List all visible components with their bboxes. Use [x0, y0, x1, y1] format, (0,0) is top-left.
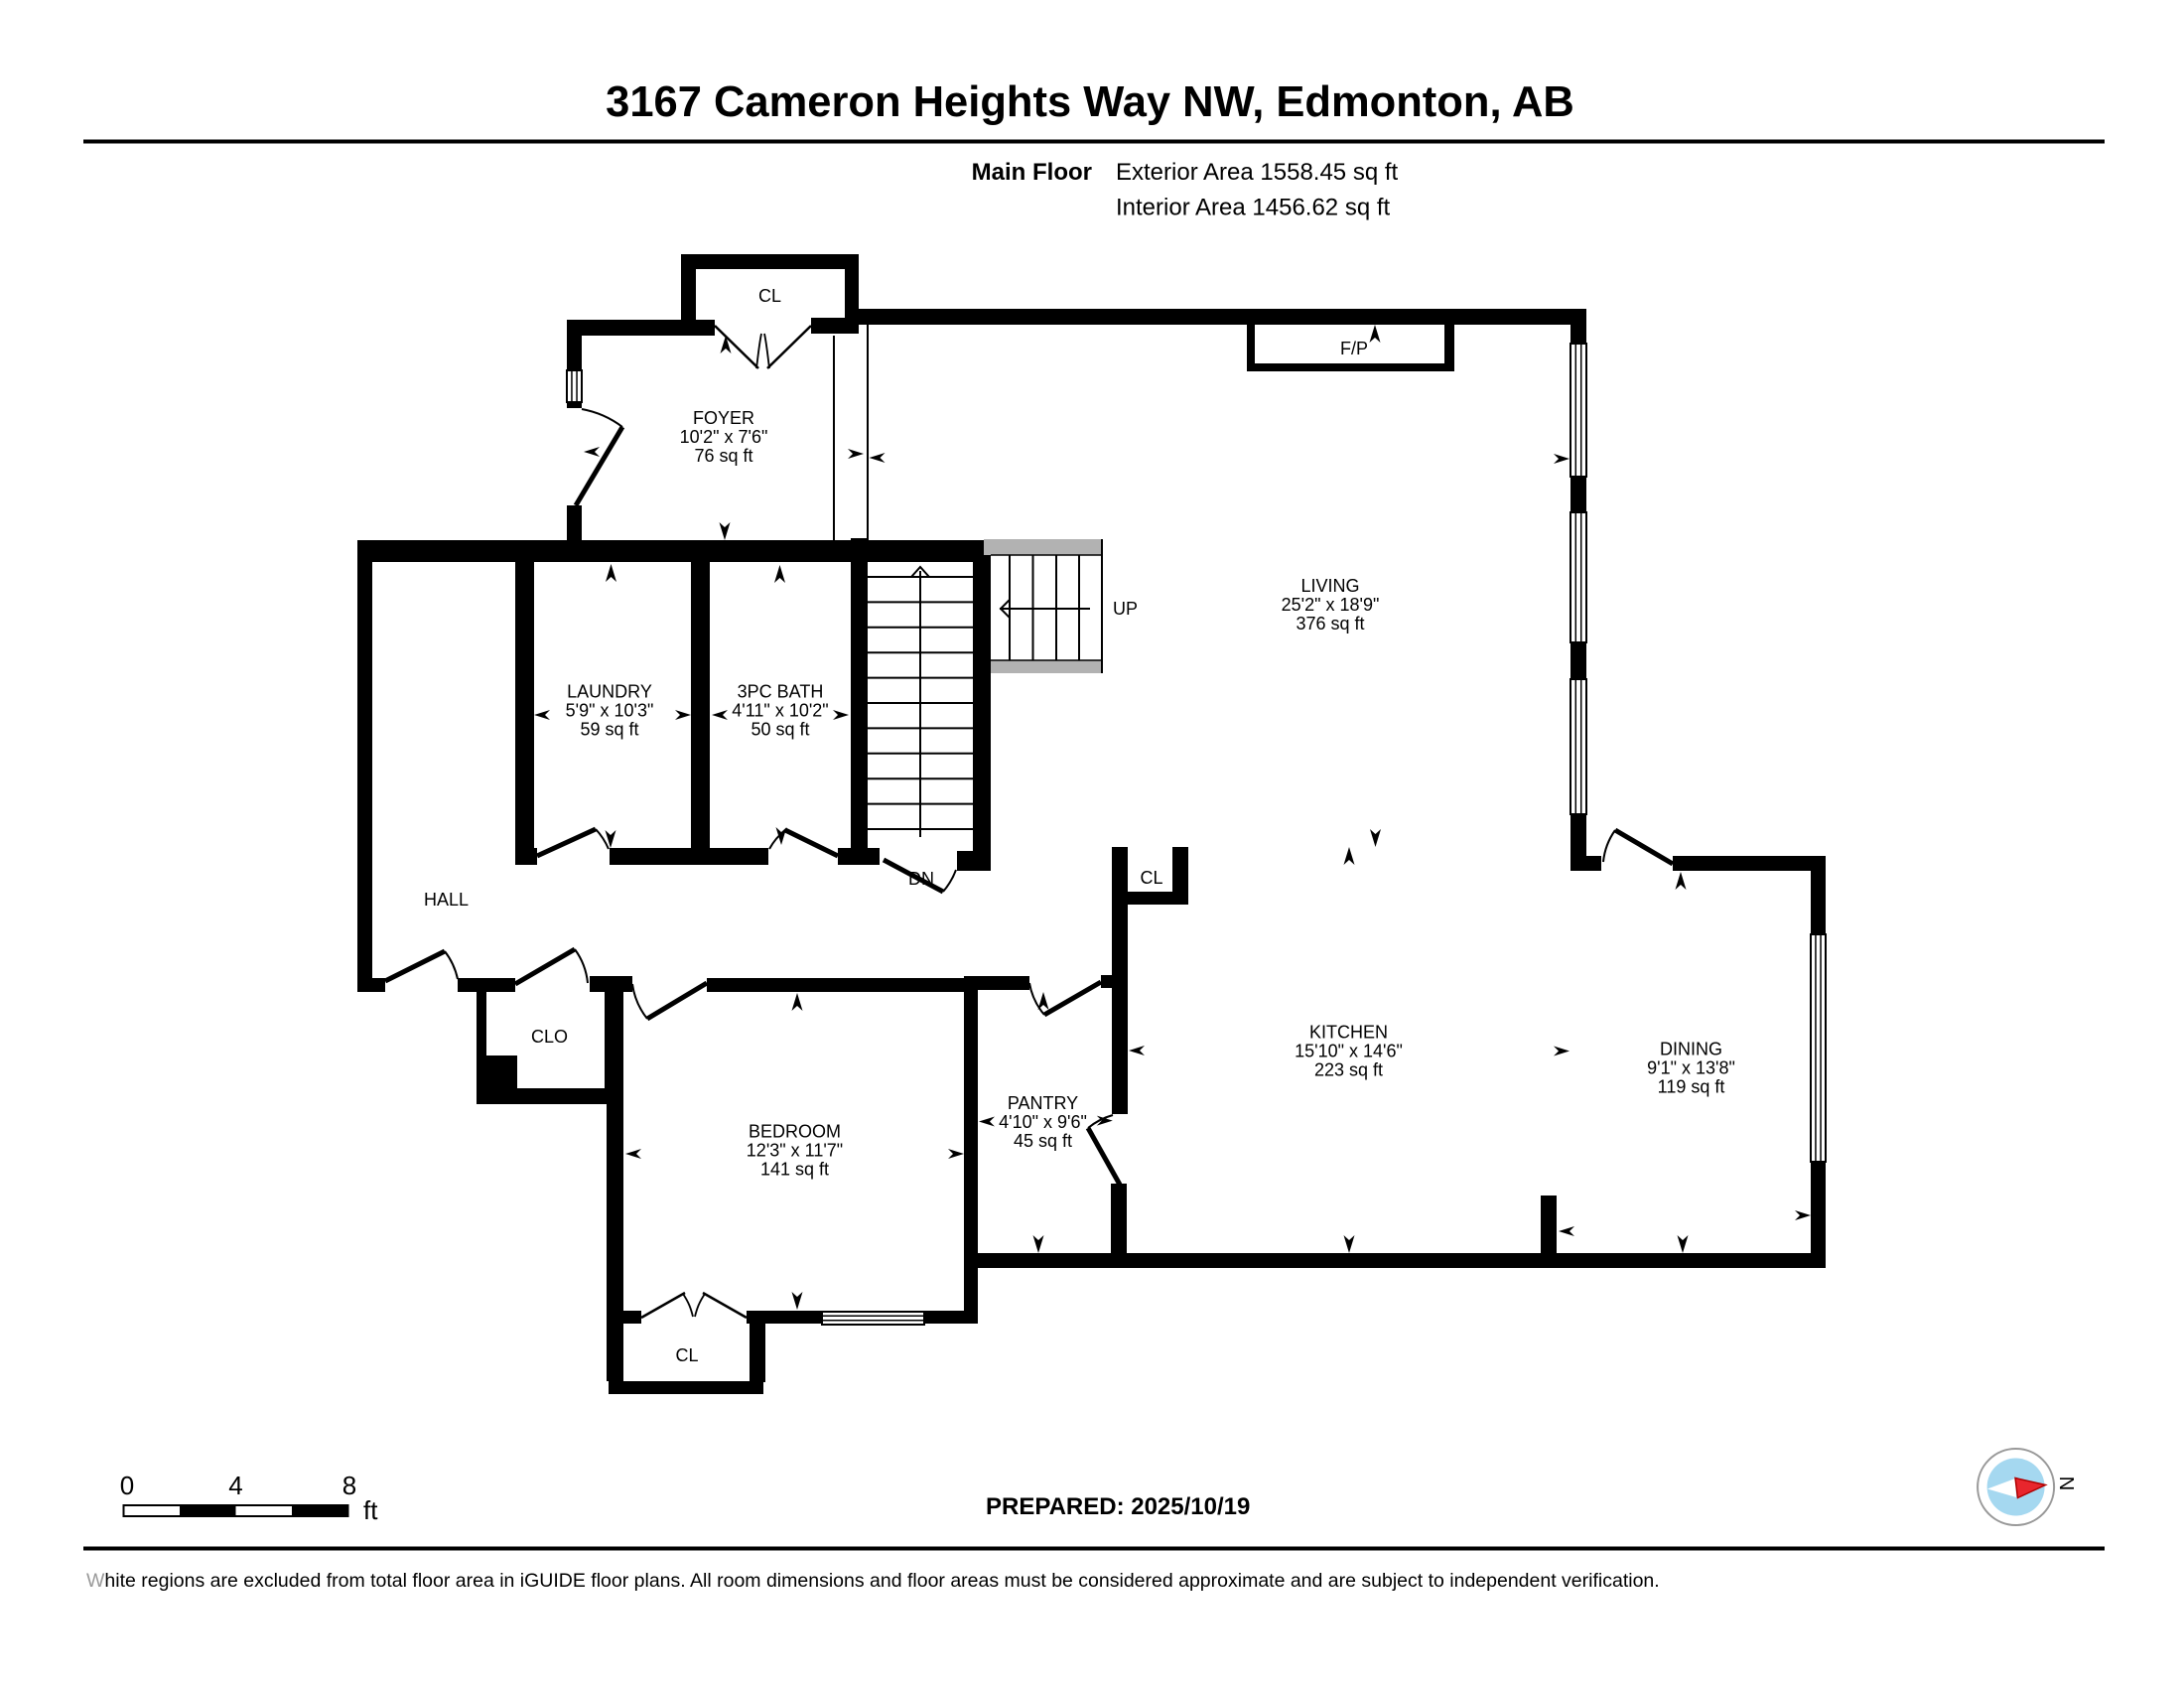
svg-text:15'10" x 14'6": 15'10" x 14'6" — [1295, 1042, 1403, 1061]
svg-text:4: 4 — [228, 1471, 242, 1500]
svg-text:223 sq ft: 223 sq ft — [1314, 1060, 1383, 1080]
svg-text:PREPARED: 2025/10/19: PREPARED: 2025/10/19 — [986, 1493, 1250, 1520]
svg-text:25'2" x 18'9": 25'2" x 18'9" — [1282, 595, 1380, 615]
svg-text:76 sq ft: 76 sq ft — [694, 446, 752, 466]
svg-text:HALL: HALL — [424, 890, 469, 910]
svg-text:5'9" x 10'3": 5'9" x 10'3" — [566, 701, 654, 721]
svg-text:10'2" x 7'6": 10'2" x 7'6" — [680, 427, 768, 447]
svg-text:Main Floor: Main Floor — [972, 159, 1092, 186]
svg-text:Exterior Area 1558.45 sq ft: Exterior Area 1558.45 sq ft — [1116, 159, 1399, 186]
svg-text:White regions are excluded fro: White regions are excluded from total fl… — [86, 1570, 1660, 1592]
svg-text:119 sq ft: 119 sq ft — [1658, 1077, 1725, 1097]
svg-text:3PC BATH: 3PC BATH — [738, 682, 824, 702]
svg-text:9'1" x 13'8": 9'1" x 13'8" — [1647, 1058, 1735, 1078]
svg-text:CL: CL — [1140, 868, 1162, 888]
svg-text:59 sq ft: 59 sq ft — [580, 720, 638, 740]
svg-text:4'11" x 10'2": 4'11" x 10'2" — [732, 701, 828, 721]
svg-text:3167 Cameron Heights Way NW, E: 3167 Cameron Heights Way NW, Edmonton, A… — [606, 78, 1574, 126]
svg-text:45 sq ft: 45 sq ft — [1014, 1131, 1072, 1151]
svg-text:CLO: CLO — [531, 1027, 568, 1047]
svg-text:Interior Area 1456.62 sq ft: Interior Area 1456.62 sq ft — [1116, 195, 1391, 221]
svg-text:376 sq ft: 376 sq ft — [1296, 614, 1364, 633]
svg-text:0: 0 — [120, 1471, 134, 1500]
svg-text:DN: DN — [908, 869, 934, 889]
svg-text:141 sq ft: 141 sq ft — [760, 1160, 829, 1180]
svg-text:FOYER: FOYER — [693, 408, 754, 428]
svg-text:ft: ft — [363, 1495, 378, 1525]
svg-text:UP: UP — [1113, 599, 1138, 619]
svg-text:50 sq ft: 50 sq ft — [751, 720, 809, 740]
svg-text:LAUNDRY: LAUNDRY — [567, 682, 652, 702]
svg-text:LIVING: LIVING — [1300, 576, 1359, 596]
svg-text:N: N — [2055, 1477, 2077, 1490]
svg-text:F/P: F/P — [1340, 339, 1368, 358]
svg-text:12'3" x 11'7": 12'3" x 11'7" — [747, 1141, 843, 1161]
svg-text:8: 8 — [342, 1471, 356, 1500]
svg-text:DINING: DINING — [1660, 1040, 1722, 1059]
svg-text:CL: CL — [758, 286, 781, 306]
svg-text:CL: CL — [675, 1345, 698, 1365]
svg-text:KITCHEN: KITCHEN — [1309, 1023, 1388, 1043]
svg-text:BEDROOM: BEDROOM — [749, 1122, 841, 1142]
svg-text:4'10" x 9'6": 4'10" x 9'6" — [999, 1112, 1087, 1132]
svg-text:PANTRY: PANTRY — [1008, 1093, 1078, 1113]
